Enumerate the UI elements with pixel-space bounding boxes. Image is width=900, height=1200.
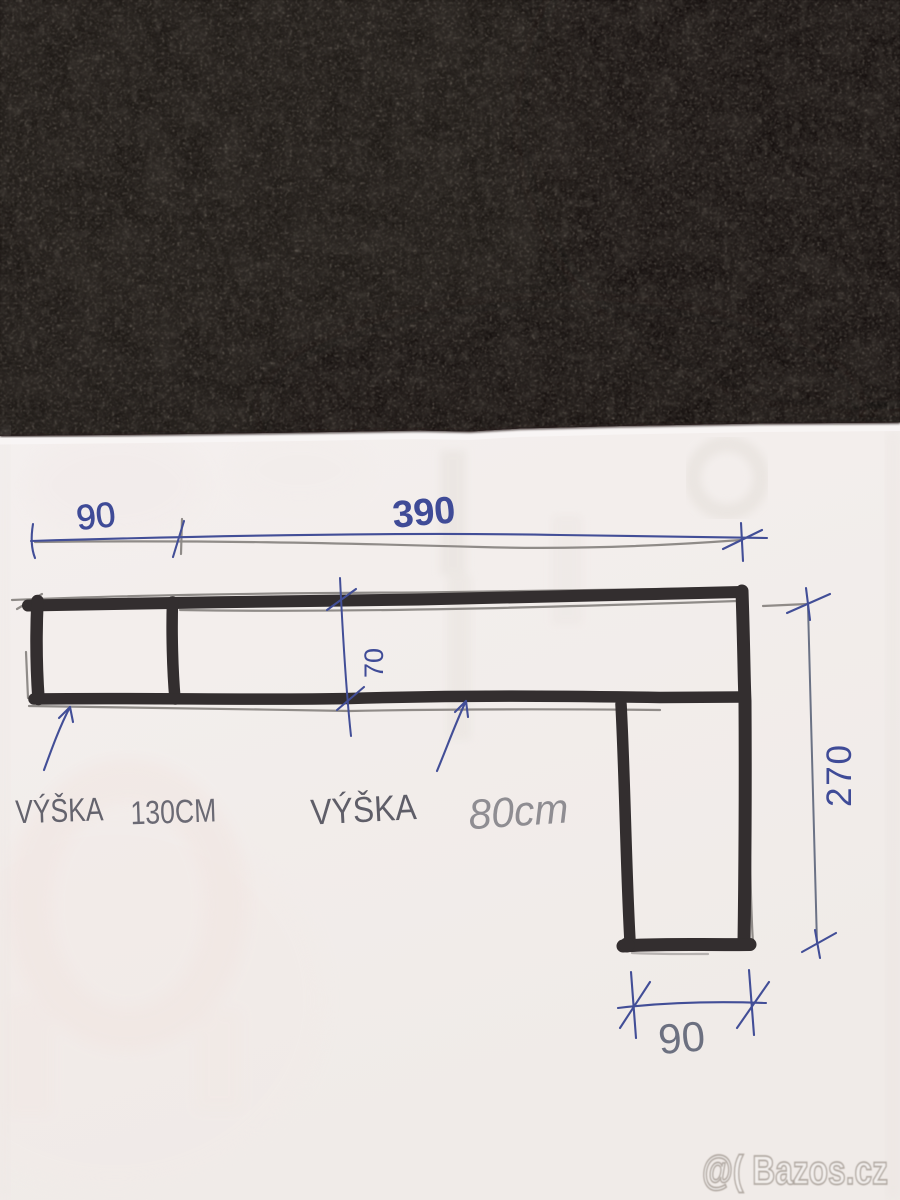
- svg-text:VÝŠKA: VÝŠKA: [309, 786, 417, 832]
- svg-text:@( Bazos.cz: @( Bazos.cz: [702, 1147, 888, 1193]
- svg-text:90: 90: [75, 495, 118, 538]
- svg-text:270: 270: [820, 745, 859, 807]
- svg-text:70: 70: [359, 648, 389, 678]
- svg-text:390: 390: [391, 489, 457, 536]
- svg-text:130CM: 130CM: [130, 791, 217, 831]
- svg-text:VÝŠKA: VÝŠKA: [15, 790, 104, 830]
- svg-text:90: 90: [656, 1012, 707, 1063]
- svg-text:80cm: 80cm: [467, 784, 570, 838]
